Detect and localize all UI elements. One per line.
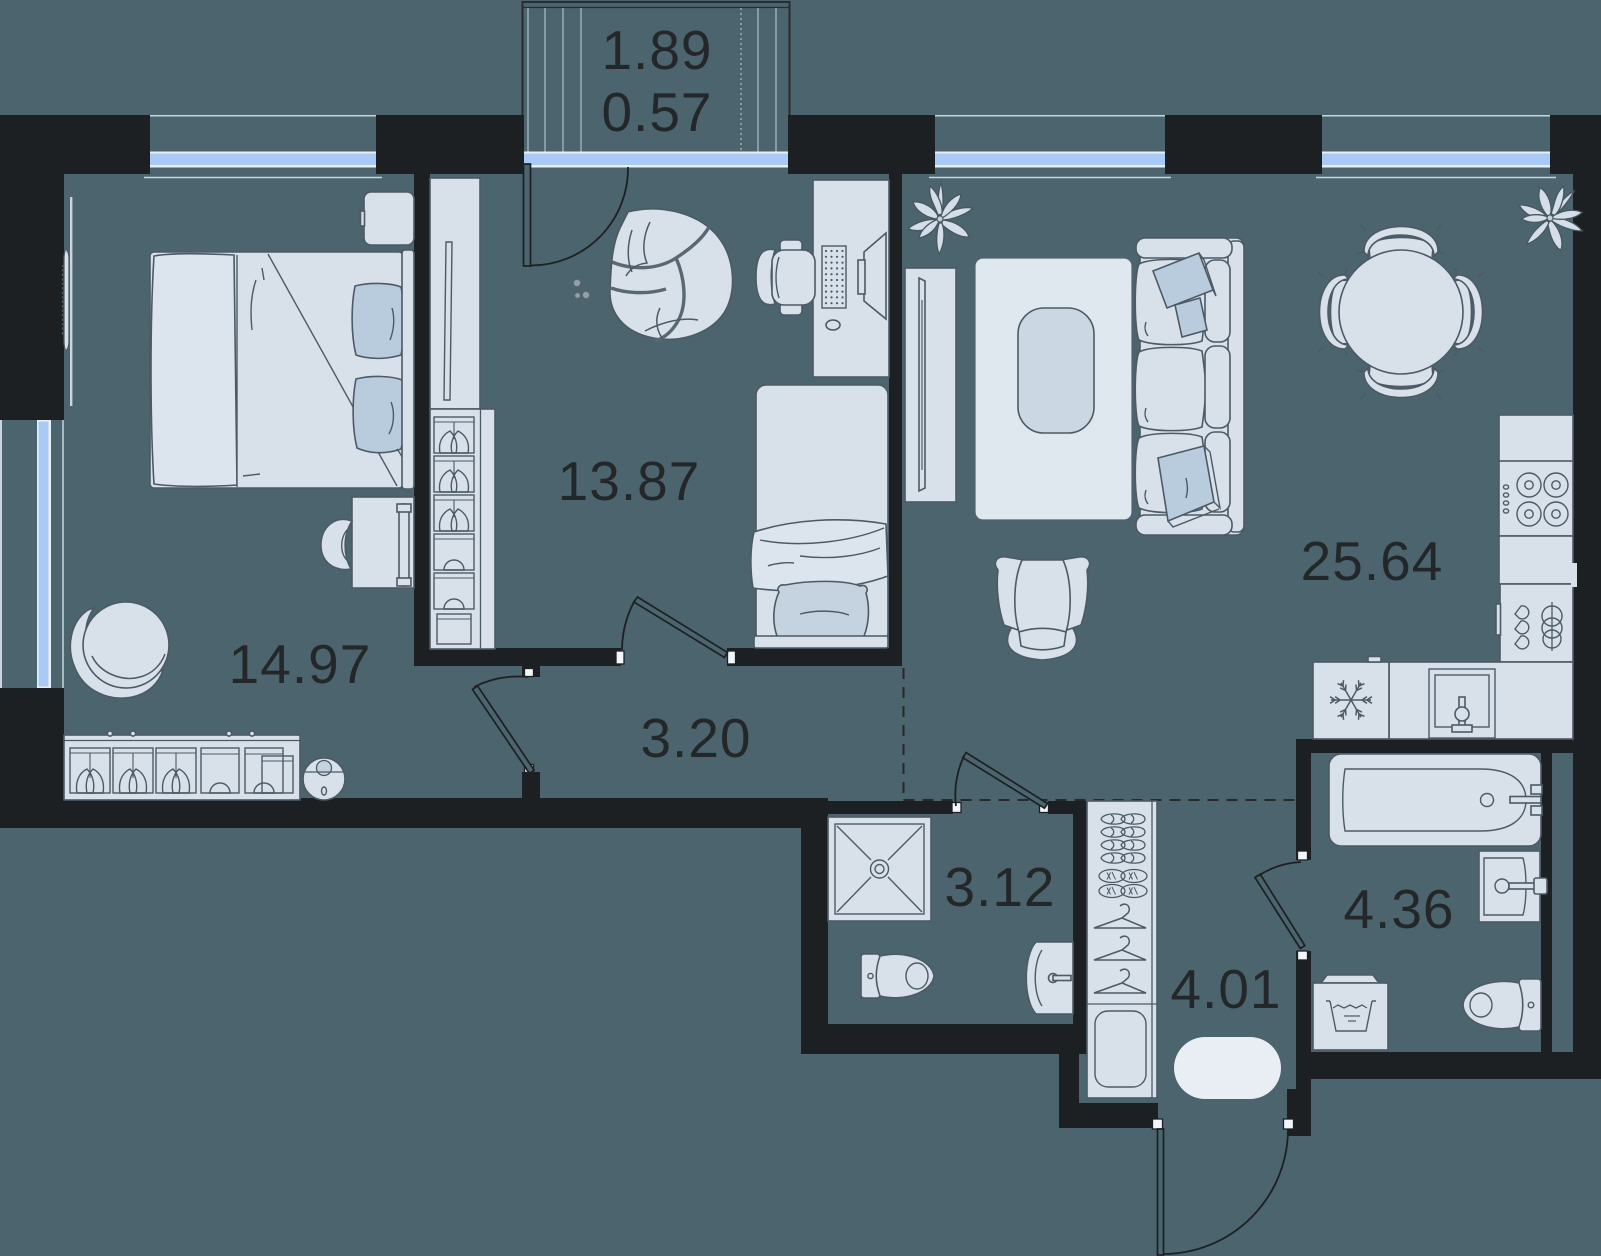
- svg-text:0.57: 0.57: [601, 81, 712, 143]
- svg-text:4.36: 4.36: [1343, 878, 1454, 940]
- svg-text:14.97: 14.97: [229, 633, 372, 695]
- svg-text:1.89: 1.89: [601, 19, 712, 81]
- svg-text:3.20: 3.20: [640, 707, 751, 769]
- svg-text:3.12: 3.12: [944, 856, 1055, 918]
- svg-text:25.64: 25.64: [1301, 530, 1444, 592]
- svg-text:13.87: 13.87: [558, 450, 701, 512]
- svg-text:4.01: 4.01: [1170, 958, 1281, 1020]
